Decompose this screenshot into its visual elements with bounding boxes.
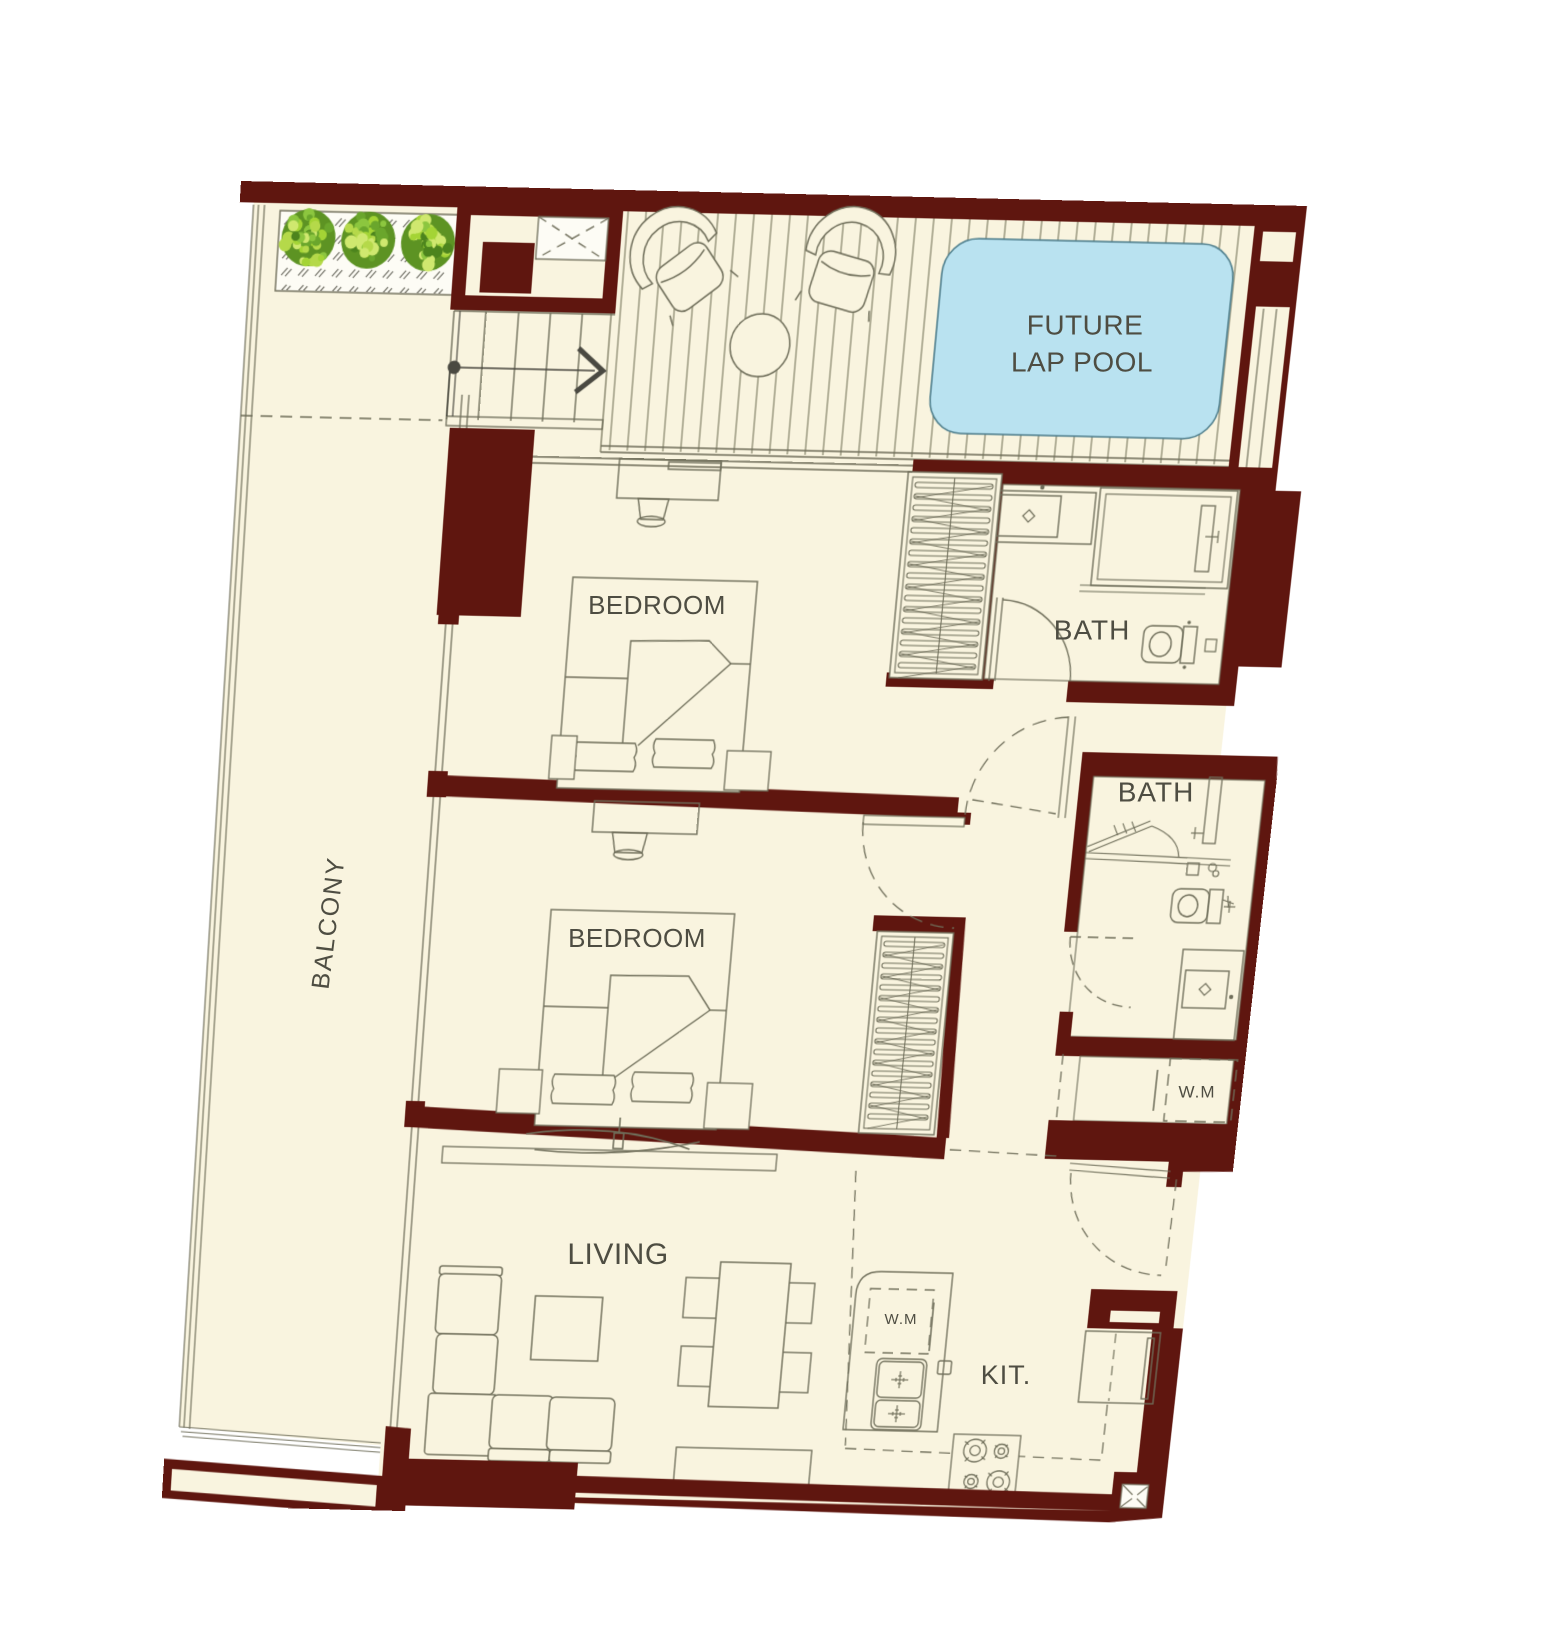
svg-text:FUTURE: FUTURE [1027, 309, 1144, 340]
svg-text:LIVING: LIVING [567, 1238, 668, 1271]
svg-text:BEDROOM: BEDROOM [568, 923, 706, 953]
svg-text:BATH: BATH [1118, 776, 1195, 807]
svg-text:BATH: BATH [1054, 614, 1131, 645]
svg-text:W.M: W.M [1179, 1082, 1216, 1101]
svg-text:BALCONY: BALCONY [307, 855, 351, 991]
svg-text:LAP POOL: LAP POOL [1011, 346, 1153, 377]
svg-text:KIT.: KIT. [981, 1360, 1032, 1390]
svg-text:BEDROOM: BEDROOM [588, 590, 726, 620]
svg-text:W.M: W.M [885, 1311, 918, 1328]
